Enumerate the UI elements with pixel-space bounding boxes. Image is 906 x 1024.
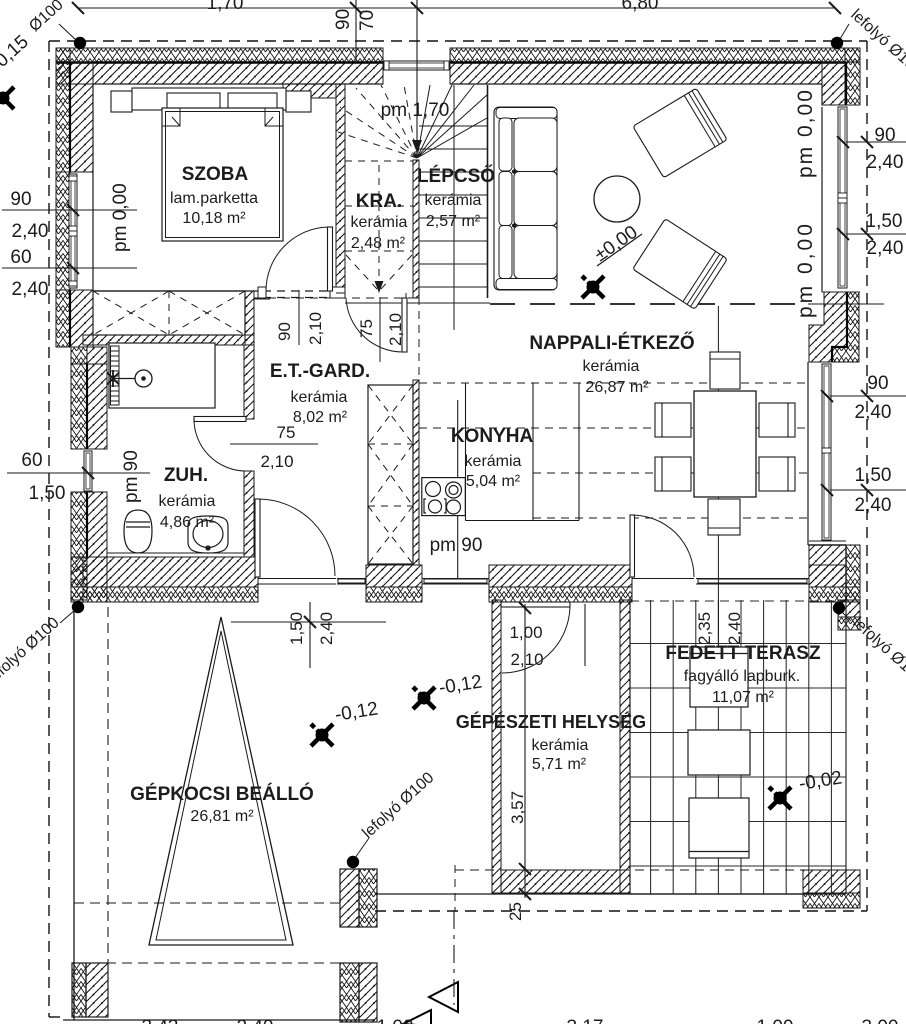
svg-text:2,40: 2,40 <box>867 238 904 259</box>
svg-text:fagyálló lapburk.: fagyálló lapburk. <box>684 668 801 685</box>
svg-text:kerámia: kerámia <box>425 192 482 209</box>
svg-text:90: 90 <box>874 125 895 146</box>
svg-text:KRA.: KRA. <box>356 191 402 212</box>
svg-text:3,57: 3,57 <box>508 791 527 824</box>
svg-text:3,00: 3,00 <box>862 1017 899 1024</box>
svg-text:2,10: 2,10 <box>260 452 293 471</box>
svg-text:kerámia: kerámia <box>351 214 408 231</box>
svg-text:E.T.-GARD.: E.T.-GARD. <box>270 361 370 382</box>
svg-text:kerámia: kerámia <box>465 453 522 470</box>
svg-text:pm 90: pm 90 <box>121 450 142 503</box>
svg-text:1,70: 1,70 <box>207 0 244 14</box>
svg-text:3,17: 3,17 <box>567 1017 604 1024</box>
svg-text:1,50: 1,50 <box>29 483 66 504</box>
svg-text:75: 75 <box>357 319 376 338</box>
svg-text:26,81 m²: 26,81 m² <box>190 808 254 825</box>
svg-text:90: 90 <box>10 189 31 210</box>
svg-text:2,40: 2,40 <box>317 612 336 645</box>
svg-text:2,48 m²: 2,48 m² <box>351 235 406 252</box>
svg-text:90: 90 <box>867 373 888 394</box>
svg-text:2,40: 2,40 <box>12 279 49 300</box>
svg-text:25: 25 <box>506 902 525 921</box>
svg-text:1,50: 1,50 <box>287 612 306 645</box>
svg-text:2,10: 2,10 <box>306 312 325 345</box>
svg-text:GÉPKOCSI BEÁLLÓ: GÉPKOCSI BEÁLLÓ <box>130 783 314 805</box>
svg-text:5,04 m²: 5,04 m² <box>466 473 521 490</box>
svg-text:70: 70 <box>357 10 378 31</box>
svg-text:2,40: 2,40 <box>855 402 892 423</box>
svg-text:2,40: 2,40 <box>855 495 892 516</box>
svg-text:3,43: 3,43 <box>142 1017 179 1024</box>
svg-text:26,87 m²: 26,87 m² <box>585 379 649 396</box>
svg-text:2,40: 2,40 <box>867 152 904 173</box>
svg-text:FEDETT TERASZ: FEDETT TERASZ <box>665 643 821 664</box>
svg-text:kerámia: kerámia <box>291 389 348 406</box>
svg-text:1,50: 1,50 <box>866 211 903 232</box>
svg-text:90: 90 <box>275 322 294 341</box>
svg-text:11,07 m²: 11,07 m² <box>712 689 775 706</box>
svg-text:10,18 m²: 10,18 m² <box>182 210 246 227</box>
svg-text:4,86 m²: 4,86 m² <box>160 514 215 531</box>
svg-text:1,00: 1,00 <box>509 623 542 642</box>
svg-text:2,40: 2,40 <box>237 1017 274 1024</box>
svg-text:90: 90 <box>333 9 354 30</box>
svg-text:60: 60 <box>21 450 42 471</box>
svg-text:1,00: 1,00 <box>757 1017 794 1024</box>
svg-text:LÉPCSŐ: LÉPCSŐ <box>417 165 495 187</box>
svg-text:5,71 m²: 5,71 m² <box>532 756 587 773</box>
svg-text:60: 60 <box>10 247 31 268</box>
svg-text:kerámia: kerámia <box>159 493 216 510</box>
svg-text:75: 75 <box>277 423 296 442</box>
svg-text:8,02 m²: 8,02 m² <box>293 409 348 426</box>
svg-text:kerámia: kerámia <box>583 358 640 375</box>
svg-text:lam.parketta: lam.parketta <box>170 190 258 207</box>
svg-text:1,00: 1,00 <box>377 1017 414 1024</box>
svg-text:KONYHA: KONYHA <box>451 426 534 447</box>
svg-text:2,40: 2,40 <box>725 612 744 645</box>
svg-text:pm 0,00: pm 0,00 <box>110 183 131 252</box>
svg-text:2,40: 2,40 <box>12 221 49 242</box>
svg-text:1,50: 1,50 <box>855 465 892 486</box>
svg-text:pm 0,00: pm 0,00 <box>794 88 817 178</box>
svg-text:NAPPALI-ÉTKEZŐ: NAPPALI-ÉTKEZŐ <box>529 332 694 354</box>
svg-text:pm 90: pm 90 <box>430 535 483 556</box>
svg-text:pm 0,00: pm 0,00 <box>794 221 817 318</box>
svg-text:kerámia: kerámia <box>532 737 589 754</box>
svg-text:ZUH.: ZUH. <box>164 465 208 486</box>
svg-text:SZOBA: SZOBA <box>182 164 249 185</box>
svg-text:2,10: 2,10 <box>510 650 543 669</box>
svg-text:pm 1,70: pm 1,70 <box>381 100 450 121</box>
svg-text:GÉPÉSZETI HELYSÉG: GÉPÉSZETI HELYSÉG <box>456 711 646 732</box>
svg-text:2,35: 2,35 <box>695 612 714 645</box>
svg-text:2,10: 2,10 <box>386 313 405 346</box>
svg-text:6,80: 6,80 <box>622 0 659 14</box>
svg-text:2,57 m²: 2,57 m² <box>426 213 481 230</box>
